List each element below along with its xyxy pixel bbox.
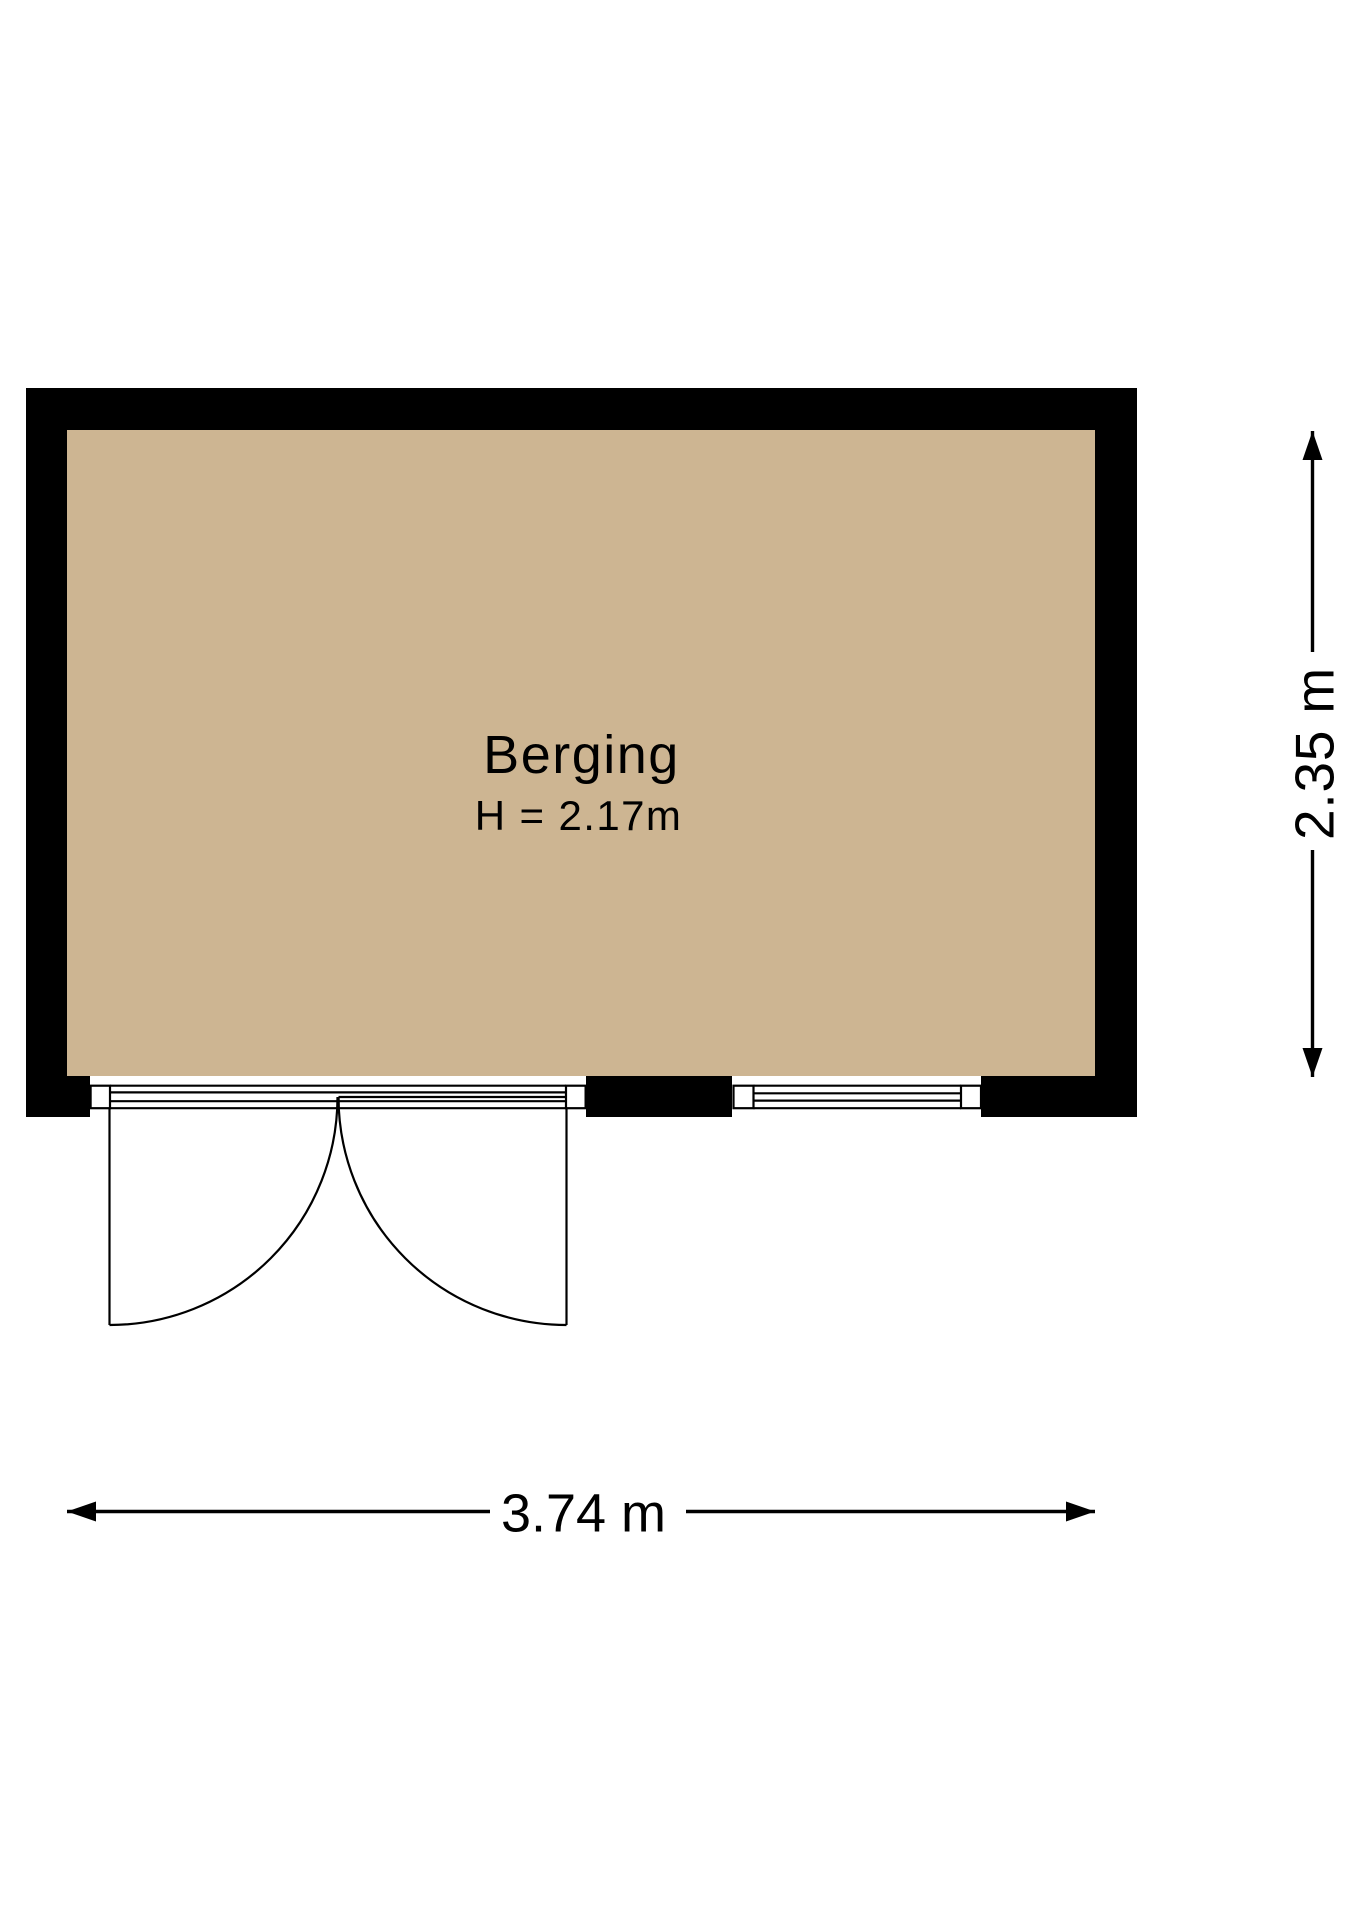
svg-text:Berging: Berging [483, 725, 680, 785]
svg-text:3.74 m: 3.74 m [501, 1484, 666, 1544]
svg-text:2.35 m: 2.35 m [1284, 667, 1346, 840]
svg-text:H = 2.17m: H = 2.17m [475, 792, 683, 839]
